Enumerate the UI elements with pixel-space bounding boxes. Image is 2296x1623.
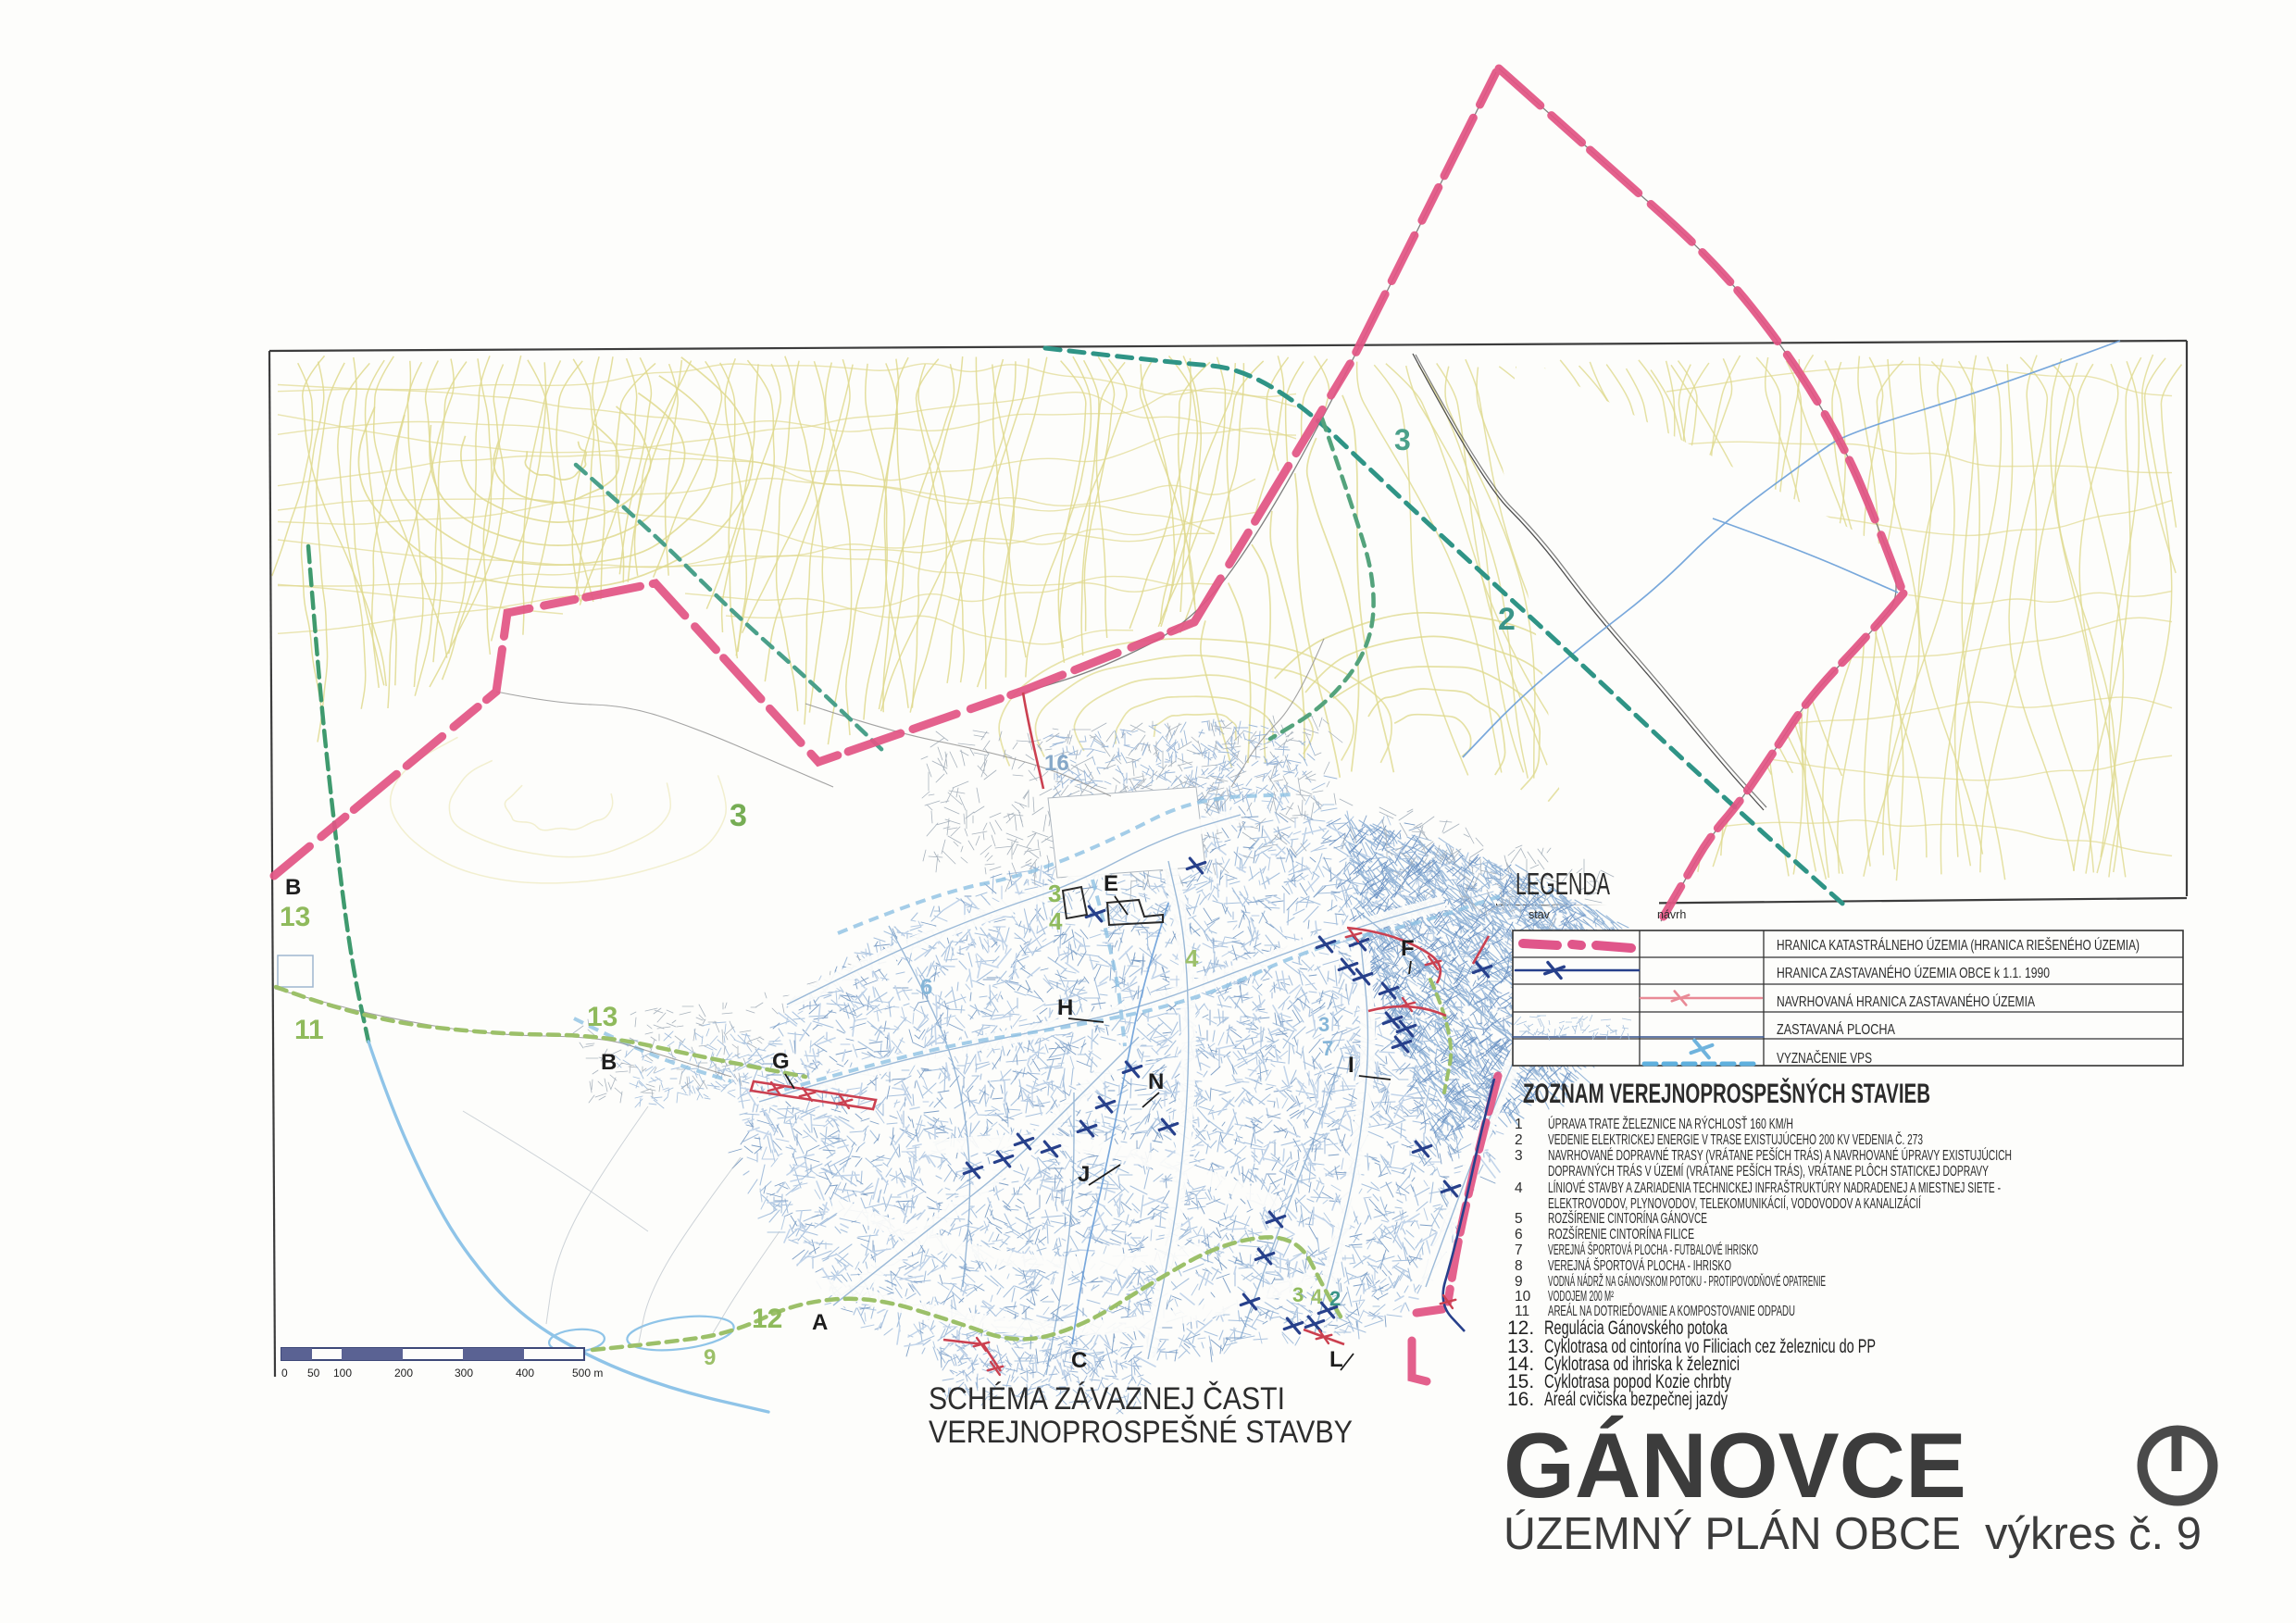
svg-text:E: E (1104, 871, 1118, 896)
svg-text:0: 0 (281, 1367, 288, 1380)
svg-text:6: 6 (920, 975, 932, 1000)
svg-text:ÚPRAVA TRATE ŽELEZNICE NA RÝCH: ÚPRAVA TRATE ŽELEZNICE NA RÝCHLOSŤ 160 K… (1548, 1117, 1793, 1132)
svg-text:stav: stav (1529, 908, 1551, 921)
svg-text:100: 100 (333, 1367, 352, 1380)
svg-text:5: 5 (1515, 1211, 1523, 1227)
svg-text:VYZNAČENIE VPS: VYZNAČENIE VPS (1777, 1049, 1872, 1067)
svg-text:13: 13 (587, 1002, 618, 1032)
svg-text:ZOZNAM VEREJNOPROSPEŠNÝCH STAV: ZOZNAM VEREJNOPROSPEŠNÝCH STAVIEB (1523, 1078, 1930, 1109)
svg-text:výkres č. 9: výkres č. 9 (1985, 1509, 2202, 1559)
svg-text:16.: 16. (1507, 1389, 1534, 1410)
svg-text:A: A (812, 1310, 828, 1335)
svg-text:GÁNOVCE: GÁNOVCE (1504, 1414, 1966, 1517)
svg-text:VODOJEM 200 M²: VODOJEM 200 M² (1548, 1289, 1614, 1305)
svg-text:H: H (1057, 995, 1073, 1020)
svg-text:7: 7 (1322, 1037, 1333, 1060)
svg-text:8: 8 (1515, 1258, 1523, 1274)
svg-text:10: 10 (1515, 1289, 1531, 1305)
svg-text:N: N (1148, 1069, 1164, 1094)
svg-text:ELEKTROVODOV, PLYNOVODOV, TELE: ELEKTROVODOV, PLYNOVODOV, TELEKOMUNIKÁCI… (1548, 1196, 1921, 1212)
svg-text:4: 4 (1515, 1180, 1523, 1196)
svg-text:NAVRHOVANÉ DOPRAVNÉ TRASY (VRÁ: NAVRHOVANÉ DOPRAVNÉ TRASY (VRÁTANE PEŠÍC… (1548, 1148, 2012, 1164)
svg-text:B: B (601, 1050, 617, 1075)
svg-text:LÍNIOVÉ STAVBY A ZARIADENIA TE: LÍNIOVÉ STAVBY A ZARIADENIA TECHNICKEJ I… (1548, 1180, 2001, 1196)
svg-text:7: 7 (1515, 1242, 1523, 1258)
svg-text:VEDENIE ELEKTRICKEJ ENERGIE V: VEDENIE ELEKTRICKEJ ENERGIE V TRASE EXIS… (1548, 1132, 1923, 1148)
svg-text:3: 3 (1394, 423, 1411, 456)
svg-text:4: 4 (1185, 944, 1199, 972)
svg-text:VEREJNÁ ŠPORTOVÁ PLOCHA - FUTB: VEREJNÁ ŠPORTOVÁ PLOCHA - FUTBALOVÉ IHRI… (1548, 1242, 1758, 1258)
svg-text:13: 13 (280, 902, 310, 932)
svg-text:SCHÉMA ZÁVAZNEJ ČASTI: SCHÉMA ZÁVAZNEJ ČASTI (929, 1381, 1285, 1417)
svg-text:11: 11 (294, 1015, 324, 1045)
svg-text:3: 3 (1048, 880, 1061, 907)
svg-text:ZASTAVANÁ PLOCHA: ZASTAVANÁ PLOCHA (1777, 1020, 1895, 1038)
svg-text:50: 50 (307, 1367, 320, 1380)
svg-text:16: 16 (1044, 751, 1069, 776)
svg-text:2: 2 (1329, 1287, 1341, 1310)
svg-text:DOPRAVNÝCH TRÁS V ÚZEMÍ (VRÁTA: DOPRAVNÝCH TRÁS V ÚZEMÍ (VRÁTANE PEŠÍCH … (1548, 1164, 1989, 1180)
svg-text:500 m: 500 m (572, 1367, 603, 1380)
svg-text:HRANICA KATASTRÁLNEHO ÚZEMIA (: HRANICA KATASTRÁLNEHO ÚZEMIA (HRANICA RI… (1777, 936, 2140, 954)
svg-text:300: 300 (455, 1367, 473, 1380)
svg-text:4: 4 (1311, 1285, 1323, 1308)
svg-text:3: 3 (1292, 1283, 1304, 1306)
svg-text:VEREJNÁ ŠPORTOVÁ PLOCHA - IHRI: VEREJNÁ ŠPORTOVÁ PLOCHA - IHRISKO (1548, 1258, 1731, 1274)
svg-text:I: I (1348, 1053, 1354, 1078)
svg-text:návrh: návrh (1657, 908, 1686, 921)
svg-text:G: G (772, 1049, 790, 1074)
svg-text:3: 3 (730, 798, 747, 833)
svg-text:LEGENDA: LEGENDA (1516, 867, 1610, 901)
svg-text:HRANICA ZASTAVANÉHO ÚZEMIA OBC: HRANICA ZASTAVANÉHO ÚZEMIA OBCE k 1.1. 1… (1777, 964, 2050, 981)
svg-text:ÚZEMNÝ PLÁN OBCE: ÚZEMNÝ PLÁN OBCE (1504, 1509, 1961, 1559)
svg-text:4: 4 (1049, 907, 1063, 935)
svg-text:12: 12 (752, 1304, 782, 1334)
svg-text:2: 2 (1498, 602, 1516, 637)
svg-text:ROZŠÍRENIE CINTORÍNA FILICE: ROZŠÍRENIE CINTORÍNA FILICE (1548, 1227, 1694, 1242)
svg-text:NAVRHOVANÁ HRANICA ZASTAVANÉHO: NAVRHOVANÁ HRANICA ZASTAVANÉHO ÚZEMIA (1777, 993, 2035, 1010)
svg-text:200: 200 (394, 1367, 413, 1380)
svg-text:400: 400 (516, 1367, 534, 1380)
svg-text:F: F (1401, 936, 1415, 961)
svg-text:3: 3 (1515, 1148, 1523, 1164)
svg-text:9: 9 (1515, 1274, 1523, 1290)
svg-text:VEREJNOPROSPEŠNÉ STAVBY: VEREJNOPROSPEŠNÉ STAVBY (929, 1415, 1353, 1450)
svg-text:C: C (1071, 1348, 1087, 1373)
svg-text:ROZŠÍRENIE CINTORÍNA GÁNOVCE: ROZŠÍRENIE CINTORÍNA GÁNOVCE (1548, 1211, 1707, 1227)
svg-text:2: 2 (1515, 1132, 1523, 1148)
svg-text:VODNÁ NÁDRŽ NA GÁNOVSKOM POTOK: VODNÁ NÁDRŽ NA GÁNOVSKOM POTOKU - PROTIP… (1548, 1274, 1826, 1290)
svg-text:B: B (285, 875, 301, 900)
svg-text:1: 1 (1515, 1117, 1523, 1132)
svg-text:Areál cvičiska bezpečnej jazdy: Areál cvičiska bezpečnej jazdy (1544, 1389, 1728, 1410)
svg-text:6: 6 (1515, 1227, 1523, 1242)
svg-text:9: 9 (704, 1345, 716, 1370)
svg-text:J: J (1078, 1162, 1090, 1187)
svg-text:3: 3 (1318, 1013, 1329, 1036)
